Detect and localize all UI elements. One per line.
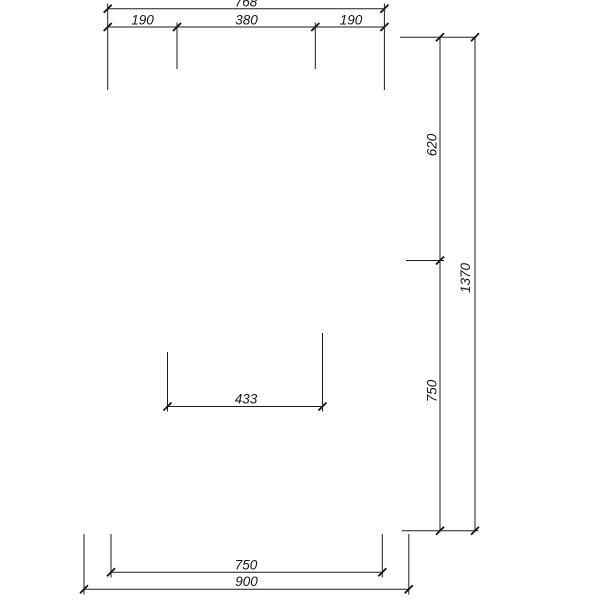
svg-text:380: 380	[235, 13, 258, 28]
svg-text:190: 190	[340, 13, 363, 28]
svg-text:750: 750	[425, 379, 440, 402]
svg-text:900: 900	[235, 574, 258, 589]
svg-text:433: 433	[235, 392, 258, 407]
svg-text:750: 750	[235, 557, 258, 572]
svg-text:1370: 1370	[458, 262, 473, 293]
svg-text:190: 190	[131, 13, 154, 28]
svg-text:768: 768	[235, 0, 258, 10]
svg-text:620: 620	[425, 133, 440, 156]
